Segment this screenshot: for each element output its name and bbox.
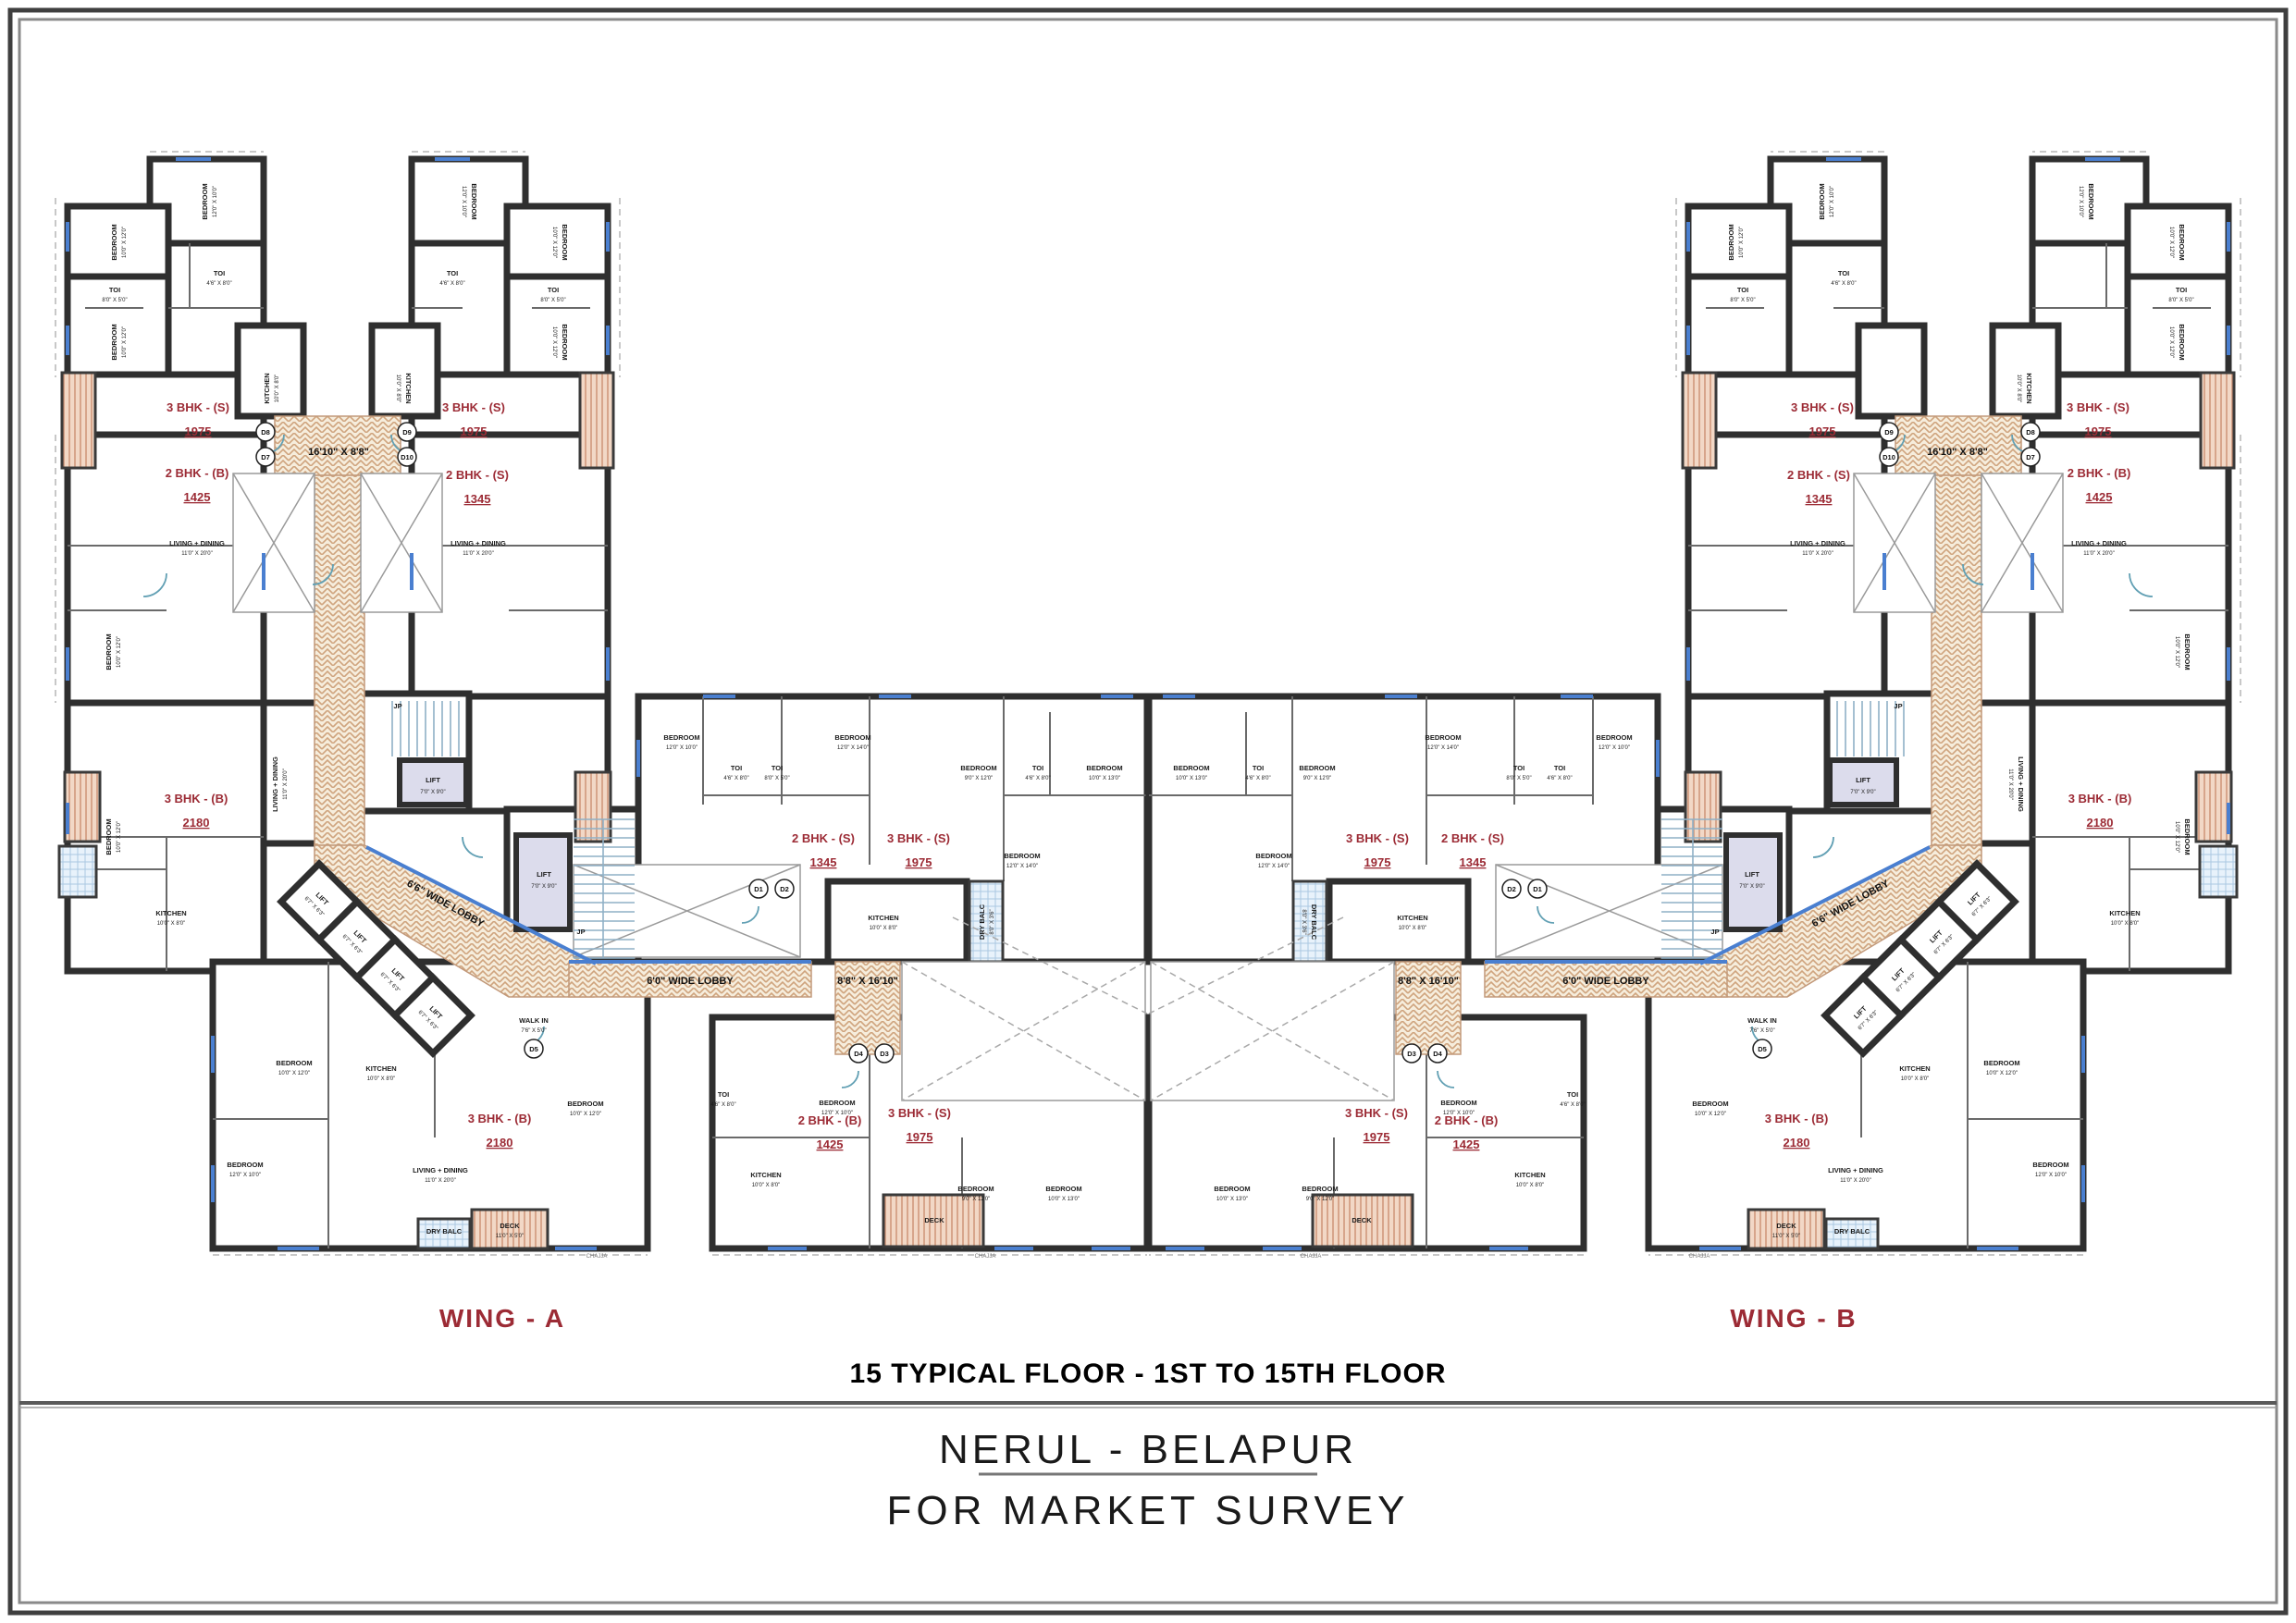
room-label: LIVING + DINING [271,756,279,812]
room-dim: 10'0" X 8'0" [870,926,898,931]
room-dim: 4'6" X 8'0" [1245,776,1270,781]
room-dim: 10'0" X 13'0" [1216,1197,1248,1202]
room-label: KITCHEN [1899,1064,1930,1073]
unit-area: 1425 [1453,1137,1480,1151]
room-label: BEDROOM [1983,1059,2019,1067]
room-dim: 10'0" X 8'0" [1516,1183,1545,1188]
lift-size: 7'0" X 9'0" [1739,884,1764,890]
room-dim: 10'0" X 8'0" [367,1076,396,1082]
room-dim: 8'0" X 3'6" [990,909,995,934]
room-label: KITCHEN [2025,373,2033,403]
room-dim: 10'0" X 8'0" [2016,375,2021,403]
room-dim: 4'6" X 8'0" [1547,776,1572,781]
room-dim: 12'0" X 10'0" [1830,186,1835,217]
room-dim: 10'0" X 12'0" [2174,821,2179,853]
floor-plan-canvas: 3 BHK - (S)1975 3 BHK - (S)1975 2 BHK - … [0,0,2296,1623]
room-label: LIVING + DINING [413,1166,468,1174]
room-dim: 9'0" X 12'0" [1303,776,1332,781]
room-label: BEDROOM [1214,1185,1250,1193]
room-dim: 10'0" X 12'0" [2168,326,2174,358]
unit-label: 2 BHK - (S) [446,468,509,482]
room-label: BEDROOM [1045,1185,1081,1193]
room-label: BEDROOM [1255,852,1291,860]
room-dim: 11'0" X 20'0" [283,768,289,799]
room-dim: 4'6" X 8'0" [1560,1102,1585,1108]
unit-label: 3 BHK - (B) [165,792,228,805]
room-dim: 10'0" X 12'0" [122,326,128,358]
room-dim: 12'0" X 10'0" [2078,186,2083,217]
room-label: LIVING + DINING [2017,756,2025,812]
room-label: BEDROOM [957,1185,994,1193]
room-label: BEDROOM [105,818,113,855]
room-label: KITCHEN [404,373,413,403]
room-label: BEDROOM [1818,183,1826,219]
lift-label: LIFT [1856,776,1870,784]
lift-size: 7'0" X 9'0" [420,790,445,795]
room-label: BEDROOM [567,1100,603,1108]
door-tag: D5 [1758,1045,1767,1053]
room-label: TOI [447,269,458,277]
unit-area: 1345 [1460,855,1487,869]
room-dim: 8'0" X 5'0" [1506,776,1531,781]
unit-label: 3 BHK - (B) [468,1112,532,1125]
room-dim: 10'0" X 8'0" [752,1183,781,1188]
room-dim: 4'6" X 8'0" [723,776,748,781]
chajja-label: CHAJJA [586,1254,608,1260]
unit-area: 2180 [2087,816,2114,830]
room-label: BEDROOM [561,324,569,360]
stair-jp-label: JP [393,702,401,710]
room-label: TOI [772,764,783,772]
unit-area: 1975 [1364,855,1391,869]
room-dim: 11'0" X 20'0" [2083,551,2114,557]
unit-area: 2180 [1784,1136,1810,1150]
room-dim: 12'0" X 14'0" [837,745,869,751]
room-label: BEDROOM [1299,764,1335,772]
room-label: BEDROOM [663,733,699,742]
room-dim: 7'6" X 5'0" [1749,1028,1774,1034]
lobby-label: 8'8" X 16'10" [837,976,898,987]
room-dim: 9'0" X 12'0" [965,776,994,781]
room-dim: 10'0" X 12'0" [570,1112,601,1117]
room-label: KITCHEN [365,1064,396,1073]
floor-plan-sheet: 3 BHK - (S)1975 3 BHK - (S)1975 2 BHK - … [0,0,2296,1623]
room-dim: 12'0" X 10'0" [1599,745,1630,751]
unit-label: 2 BHK - (S) [1787,468,1850,482]
unit-area: 1975 [2085,424,2112,438]
room-dim: 10'0" X 13'0" [1048,1197,1080,1202]
room-dim: 12'0" X 10'0" [1443,1111,1475,1116]
room-dim: 10'0" X 12'0" [551,227,557,258]
room-dim: 11'0" X 5'0" [496,1234,524,1239]
unit-label: 3 BHK - (S) [2067,400,2129,414]
unit-label: 3 BHK - (S) [1791,400,1854,414]
room-dim: 11'0" X 20'0" [1802,551,1833,557]
room-dim: 12'0" X 10'0" [666,745,697,751]
room-label: BEDROOM [2183,633,2191,670]
room-label: BEDROOM [561,224,569,260]
unit-label: 2 BHK - (S) [1441,831,1504,845]
room-dim: 12'0" X 14'0" [1427,745,1459,751]
room-label: BEDROOM [1302,1185,1338,1193]
room-dim: 8'0" X 5'0" [764,776,789,781]
room-label: TOI [1737,286,1748,294]
room-label: TOI [548,286,559,294]
unit-label: 3 BHK - (S) [888,1106,951,1120]
room-label: TOI [214,269,225,277]
room-label: BEDROOM [1425,733,1461,742]
unit-label: 3 BHK - (S) [167,400,229,414]
door-tag: D8 [2026,428,2035,436]
room-label: TOI [2176,286,2187,294]
unit-label: 2 BHK - (B) [166,466,229,480]
room-dim: 10'0" X 12'0" [551,326,557,358]
unit-area: 1975 [461,424,488,438]
room-dim: 10'0" X 12'0" [1986,1071,2018,1076]
room-dim: 4'6" X 8'0" [206,281,231,287]
room-label: LIVING + DINING [451,539,506,547]
room-label: KITCHEN [1397,914,1427,922]
room-label: DRY BALC [1834,1227,1870,1236]
room-label: BEDROOM [1727,224,1735,260]
room-dim: 11'0" X 20'0" [1840,1178,1870,1184]
room-dim: 8'0" X 5'0" [540,298,565,303]
room-dim: 9'0" X 12'0" [962,1197,991,1202]
room-label: TOI [731,764,742,772]
room-label: KITCHEN [155,909,186,917]
room-label: DECK [1352,1216,1372,1224]
door-tag: D7 [2026,453,2035,461]
room-dim: 10'0" X 12'0" [2168,227,2174,258]
room-label: KITCHEN [2109,909,2140,917]
lift-label: LIFT [426,776,440,784]
room-dim: 10'0" X 12'0" [122,227,128,258]
room-dim: 10'0" X 12'0" [1739,227,1745,258]
room-dim: 12'0" X 14'0" [1258,864,1290,869]
room-dim: 4'6" X 8'0" [439,281,464,287]
door-tag: D5 [529,1045,538,1053]
unit-area: 2180 [183,816,210,830]
stair-jp-label: JP [1710,928,1719,936]
room-dim: 12'0" X 14'0" [1006,864,1038,869]
lift-label: LIFT [1745,870,1759,879]
room-dim: 10'0" X 8'0" [2111,921,2140,927]
room-dim: 4'6" X 8'0" [1025,776,1050,781]
room-dim: 11'0" X 20'0" [425,1178,455,1184]
room-label: BEDROOM [2032,1161,2068,1169]
room-label: BEDROOM [110,324,118,360]
room-label: TOI [1838,269,1849,277]
room-label: LIVING + DINING [1790,539,1845,547]
unit-area: 1345 [464,492,491,506]
unit-area: 2180 [487,1136,513,1150]
unit-area: 1975 [1809,424,1836,438]
room-label: KITCHEN [1514,1171,1545,1179]
unit-area: 1345 [1806,492,1833,506]
lobby-label: 6'0" WIDE LOBBY [1562,976,1649,987]
room-label: BEDROOM [1173,764,1209,772]
door-tag: D2 [780,885,789,893]
room-label: TOI [718,1090,729,1099]
room-label: BEDROOM [819,1099,855,1107]
door-tag: D1 [1533,885,1542,893]
room-dim: 10'0" X 12'0" [117,821,122,853]
room-label: BEDROOM [470,183,478,219]
door-tag: D7 [261,453,270,461]
door-tag: D2 [1507,885,1516,893]
room-dim: 10'0" X 12'0" [2174,636,2179,668]
room-label: BEDROOM [227,1161,263,1169]
lobby-label: 16'10" X 8'8" [308,447,369,458]
unit-area: 1975 [1364,1130,1390,1144]
unit-area: 1975 [185,424,212,438]
room-label: DRY BALC [978,904,986,940]
room-label: BEDROOM [1440,1099,1476,1107]
unit-area: 1975 [906,855,932,869]
room-label: BEDROOM [1004,852,1040,860]
purpose-title: FOR MARKET SURVEY [886,1488,1409,1533]
lift-size: 7'0" X 9'0" [531,884,556,890]
room-label: KITCHEN [868,914,898,922]
room-label: KITCHEN [263,373,271,403]
room-label: DECK [1776,1222,1796,1230]
room-dim: 12'0" X 10'0" [213,186,218,217]
room-dim: 12'0" X 10'0" [461,186,466,217]
room-label: BEDROOM [110,224,118,260]
room-label: DRY BALC [426,1227,463,1236]
unit-label: 3 BHK - (S) [442,400,505,414]
room-dim: 10'0" X 8'0" [157,921,186,927]
room-label: TOI [109,286,120,294]
room-dim: 12'0" X 10'0" [229,1173,261,1178]
room-dim: 11'0" X 20'0" [2007,768,2013,799]
room-label: TOI [1554,764,1565,772]
room-label: BEDROOM [276,1059,312,1067]
door-tag: D3 [880,1050,889,1058]
room-label: WALK IN [519,1016,549,1025]
room-dim: 12'0" X 10'0" [2035,1173,2067,1178]
room-dim: 10'0" X 12'0" [1695,1112,1726,1117]
unit-label: 2 BHK - (B) [2068,466,2131,480]
door-tag: D4 [854,1050,863,1058]
room-label: BEDROOM [2087,183,2095,219]
door-tag: D4 [1433,1050,1442,1058]
unit-label: 3 BHK - (S) [1345,1106,1408,1120]
unit-area: 1425 [2086,490,2113,504]
room-dim: 10'0" X 12'0" [278,1071,310,1076]
room-dim: 9'0" X 12'0" [1306,1197,1335,1202]
lift-size: 7'0" X 9'0" [1850,790,1875,795]
unit-label: 3 BHK - (B) [2068,792,2132,805]
room-label: BEDROOM [1692,1100,1728,1108]
room-label: DECK [500,1222,520,1230]
door-tag: D9 [402,428,412,436]
room-dim: 10'0" X 13'0" [1089,776,1120,781]
room-label: BEDROOM [1596,733,1632,742]
room-dim: 10'0" X 12'0" [117,636,122,668]
room-label: TOI [1032,764,1043,772]
stair-jp-label: JP [1894,702,1902,710]
door-tag: D3 [1407,1050,1416,1058]
room-dim: 10'0" X 13'0" [1176,776,1207,781]
unit-label: 3 BHK - (B) [1765,1112,1829,1125]
room-dim: 8'0" X 5'0" [2168,298,2193,303]
room-label: TOI [1253,764,1264,772]
room-label: TOI [1567,1090,1578,1099]
wing-b-title: WING - B [1730,1304,1857,1333]
door-tag: D10 [401,453,414,461]
unit-area: 1345 [810,855,837,869]
room-label: LIVING + DINING [2071,539,2127,547]
room-dim: 8'0" X 5'0" [1730,298,1755,303]
room-dim: 11'0" X 20'0" [463,551,493,557]
room-dim: 10'0" X 8'0" [275,375,280,403]
room-label: BEDROOM [2178,324,2186,360]
lift-label: LIFT [537,870,551,879]
wing-a-title: WING - A [439,1304,565,1333]
room-label: DECK [924,1216,944,1224]
room-dim: 4'6" X 8'0" [1831,281,1856,287]
room-label: LIVING + DINING [1828,1166,1883,1174]
door-tag: D8 [261,428,270,436]
unit-area: 1975 [907,1130,933,1144]
room-dim: 8'0" X 3'6" [1301,909,1306,934]
door-tag: D1 [754,885,763,893]
room-label: WALK IN [1747,1016,1777,1025]
room-label: BEDROOM [105,633,113,670]
door-tag: D10 [1882,453,1895,461]
stair-jp-label: JP [576,928,585,936]
room-dim: 11'0" X 20'0" [181,551,212,557]
unit-area: 1425 [184,490,211,504]
unit-label: 3 BHK - (S) [887,831,950,845]
room-label: BEDROOM [2178,224,2186,260]
floor-title: 15 TYPICAL FLOOR - 1ST TO 15TH FLOOR [850,1359,1447,1389]
room-label: BEDROOM [1086,764,1122,772]
room-label: BEDROOM [960,764,996,772]
room-dim: 11'0" X 5'0" [1772,1234,1800,1239]
room-label: BEDROOM [201,183,209,219]
unit-area: 1425 [817,1137,844,1151]
chajja-label: CHAJJA [1301,1254,1322,1260]
room-dim: 10'0" X 8'0" [1901,1076,1930,1082]
room-dim: 10'0" X 8'0" [1399,926,1427,931]
door-tag: D9 [1884,428,1894,436]
chajja-label: CHAJJA [1689,1254,1710,1260]
lobby-label: 16'10" X 8'8" [1927,447,1988,458]
room-dim: 8'0" X 5'0" [102,298,127,303]
unit-label: 2 BHK - (S) [792,831,855,845]
room-label: BEDROOM [834,733,870,742]
unit-label: 3 BHK - (S) [1346,831,1409,845]
room-dim: 10'0" X 8'0" [395,375,401,403]
room-label: BEDROOM [2183,818,2191,855]
chajja-label: CHAJJA [975,1254,996,1260]
room-dim: 4'6" X 8'0" [710,1102,735,1108]
room-label: KITCHEN [750,1171,781,1179]
lobby-label: 8'8" X 16'10" [1398,976,1459,987]
lobby-label: 6'0" WIDE LOBBY [647,976,734,987]
location-title: NERUL - BELAPUR [939,1427,1357,1472]
room-dim: 7'6" X 5'0" [521,1028,546,1034]
room-label: DRY BALC [1310,904,1318,941]
room-label: LIVING + DINING [169,539,225,547]
room-label: TOI [1513,764,1524,772]
room-dim: 12'0" X 10'0" [821,1111,853,1116]
